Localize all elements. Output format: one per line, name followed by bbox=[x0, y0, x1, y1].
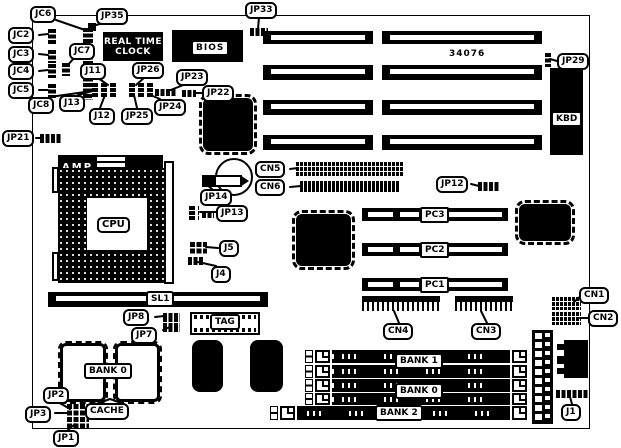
jp8-label: JP8 bbox=[123, 309, 149, 326]
jc7-connector bbox=[62, 63, 70, 76]
jp29-jumper bbox=[545, 53, 551, 67]
j1-label: J1 bbox=[561, 404, 581, 421]
bank0-cache-label: BANK 0 bbox=[84, 363, 132, 379]
jp25-label: JP25 bbox=[121, 108, 153, 125]
pc1-label: PC1 bbox=[420, 277, 449, 293]
cn5-header bbox=[296, 162, 403, 176]
bank2-label: BANK 2 bbox=[375, 405, 423, 421]
jp23-label: JP23 bbox=[176, 69, 208, 86]
simm3-latch-right bbox=[512, 379, 527, 392]
cn3-label: CN3 bbox=[471, 323, 501, 340]
simm2-latch-right bbox=[512, 365, 527, 378]
jc2-connector bbox=[48, 29, 56, 45]
pc1-seg-2 bbox=[400, 282, 419, 287]
sl1-label: SL1 bbox=[146, 291, 174, 307]
pc3-label: PC3 bbox=[420, 207, 449, 223]
jc4-connector bbox=[48, 64, 56, 78]
simm4-latch bbox=[315, 393, 330, 405]
cn2-label: CN2 bbox=[588, 310, 618, 327]
amp-bar-mark-2 bbox=[97, 163, 125, 167]
pc2-seg-3 bbox=[447, 247, 502, 252]
jp2-label: JP2 bbox=[43, 387, 69, 404]
cache-label: CACHE bbox=[85, 403, 129, 420]
cn2-header bbox=[552, 312, 581, 325]
socket-tab-2 bbox=[52, 252, 59, 281]
isa-slot-4-left bbox=[263, 135, 373, 150]
cn6-header bbox=[300, 181, 400, 192]
simm4-latch-right bbox=[512, 393, 527, 405]
jp23-jumper bbox=[155, 89, 177, 96]
cn3-header bbox=[455, 296, 513, 311]
ram-chip-1 bbox=[192, 340, 223, 392]
simm3-bracket bbox=[305, 379, 313, 392]
din-tooth-2 bbox=[557, 356, 565, 364]
j13-label: J13 bbox=[59, 95, 85, 112]
isa-slot-4-right bbox=[382, 135, 542, 150]
j4-label: J4 bbox=[211, 266, 231, 283]
jp24-label: JP24 bbox=[154, 99, 186, 116]
jp33-label: JP33 bbox=[245, 2, 277, 19]
isa-slot-2-left bbox=[263, 65, 373, 80]
pc3-seg-1 bbox=[368, 212, 393, 217]
jc3-label: JC3 bbox=[8, 46, 34, 63]
jc4-label: JC4 bbox=[8, 63, 34, 80]
jp29-label: JP29 bbox=[557, 53, 589, 70]
jc6-label: JC6 bbox=[30, 6, 56, 23]
jp12-label: JP12 bbox=[436, 176, 468, 193]
simm5-latch-right bbox=[512, 406, 527, 420]
motherboard-diagram: REAL TIME CLOCK BIOS 34076 KBD AMP CPU P… bbox=[0, 0, 621, 448]
j5-jumper bbox=[190, 242, 207, 255]
bios-label: BIOS bbox=[191, 40, 229, 56]
fuse-end bbox=[202, 175, 215, 187]
din-connector bbox=[564, 340, 588, 378]
pc3-seg-2 bbox=[400, 212, 419, 217]
isa-slot-3-right bbox=[382, 100, 542, 115]
simm5-latch bbox=[280, 406, 295, 420]
din-tooth-3 bbox=[557, 368, 565, 374]
tag-label: TAG bbox=[210, 314, 240, 330]
simm4-bracket bbox=[305, 393, 313, 405]
simm2-latch bbox=[315, 365, 330, 378]
jp7-label: JP7 bbox=[131, 327, 157, 344]
cn4-label: CN4 bbox=[383, 323, 413, 340]
din-tooth-1 bbox=[557, 344, 565, 350]
jp3-label: JP3 bbox=[25, 406, 51, 423]
simm3-latch bbox=[315, 379, 330, 392]
jp13-jumper bbox=[202, 211, 214, 218]
simm5-bracket bbox=[270, 406, 278, 420]
jc5-label: JC5 bbox=[8, 82, 34, 99]
fuse-body bbox=[214, 175, 242, 187]
jc8-label: JC8 bbox=[28, 97, 54, 114]
jp24-jp25-jp26-jumpers bbox=[129, 83, 153, 98]
jp22-label: JP22 bbox=[202, 85, 234, 102]
rtc-text-line1: REAL TIME bbox=[104, 37, 162, 47]
simm1-latch-right bbox=[512, 350, 527, 363]
cn4-header bbox=[362, 296, 440, 311]
jp14-label: JP14 bbox=[200, 189, 232, 206]
jp21-jumper bbox=[40, 134, 62, 143]
cn5-label: CN5 bbox=[255, 161, 285, 178]
j12-label: J12 bbox=[89, 108, 115, 125]
jc7-label: JC7 bbox=[69, 43, 95, 60]
isa-slot-1-left bbox=[263, 31, 373, 44]
bank1-label: BANK 1 bbox=[395, 353, 443, 369]
real-time-clock-chip: REAL TIME CLOCK bbox=[103, 32, 163, 61]
isa-slot-3-left bbox=[263, 100, 373, 115]
zif-lever bbox=[164, 161, 174, 284]
simm1-latch bbox=[315, 350, 330, 363]
fuse-tip bbox=[240, 175, 249, 187]
jp14-jumper bbox=[189, 206, 199, 220]
qfp-chip-1 bbox=[203, 98, 253, 151]
cpu-label: CPU bbox=[97, 217, 130, 233]
jp35-jumper bbox=[88, 23, 96, 31]
cn1-label: CN1 bbox=[579, 287, 609, 304]
pc3-seg-3 bbox=[447, 212, 502, 217]
pc1-seg-1 bbox=[368, 282, 393, 287]
amp-bar-mark-1 bbox=[97, 157, 125, 161]
rtc-text-line2: CLOCK bbox=[115, 47, 151, 57]
jp1-label: JP1 bbox=[53, 430, 79, 447]
isa-slot-2-right bbox=[382, 65, 542, 80]
qfp-chip-2 bbox=[296, 214, 351, 266]
bank0-simm-label: BANK 0 bbox=[395, 383, 443, 399]
jp22-jumper bbox=[182, 90, 196, 97]
jp21-label: JP21 bbox=[2, 130, 34, 147]
pc1-seg-3 bbox=[447, 282, 502, 287]
ram-chip-2 bbox=[250, 340, 283, 392]
socket-tab-1 bbox=[52, 167, 59, 193]
kbd-label: KBD bbox=[551, 111, 582, 127]
pc2-seg-2 bbox=[400, 247, 419, 252]
power-connector bbox=[532, 330, 553, 424]
j5-label: J5 bbox=[219, 240, 239, 257]
jp26-label: JP26 bbox=[132, 62, 164, 79]
cn1-header bbox=[552, 297, 581, 310]
part-number-text: 34076 bbox=[449, 49, 485, 59]
pc2-seg-1 bbox=[368, 247, 393, 252]
j4-jumper bbox=[188, 257, 203, 265]
jp8-jumper bbox=[163, 313, 180, 322]
simm2-bracket bbox=[305, 365, 313, 378]
jp35-label: JP35 bbox=[96, 8, 128, 25]
j11-label: J11 bbox=[80, 63, 106, 80]
jc2-label: JC2 bbox=[8, 27, 34, 44]
simm1-bracket bbox=[305, 350, 313, 363]
jp12-jumper bbox=[478, 182, 500, 191]
cn6-label: CN6 bbox=[255, 179, 285, 196]
jc5-connector bbox=[48, 84, 56, 98]
pc2-label: PC2 bbox=[420, 242, 449, 258]
jp7-jumper bbox=[163, 323, 180, 332]
isa-slot-1-right bbox=[382, 31, 542, 44]
jc3-connector bbox=[48, 50, 56, 63]
j11-j12-j13-jumpers bbox=[92, 83, 118, 98]
jp13-label: JP13 bbox=[216, 205, 248, 222]
j1-header bbox=[556, 390, 588, 398]
qfp-chip-3 bbox=[519, 204, 571, 241]
